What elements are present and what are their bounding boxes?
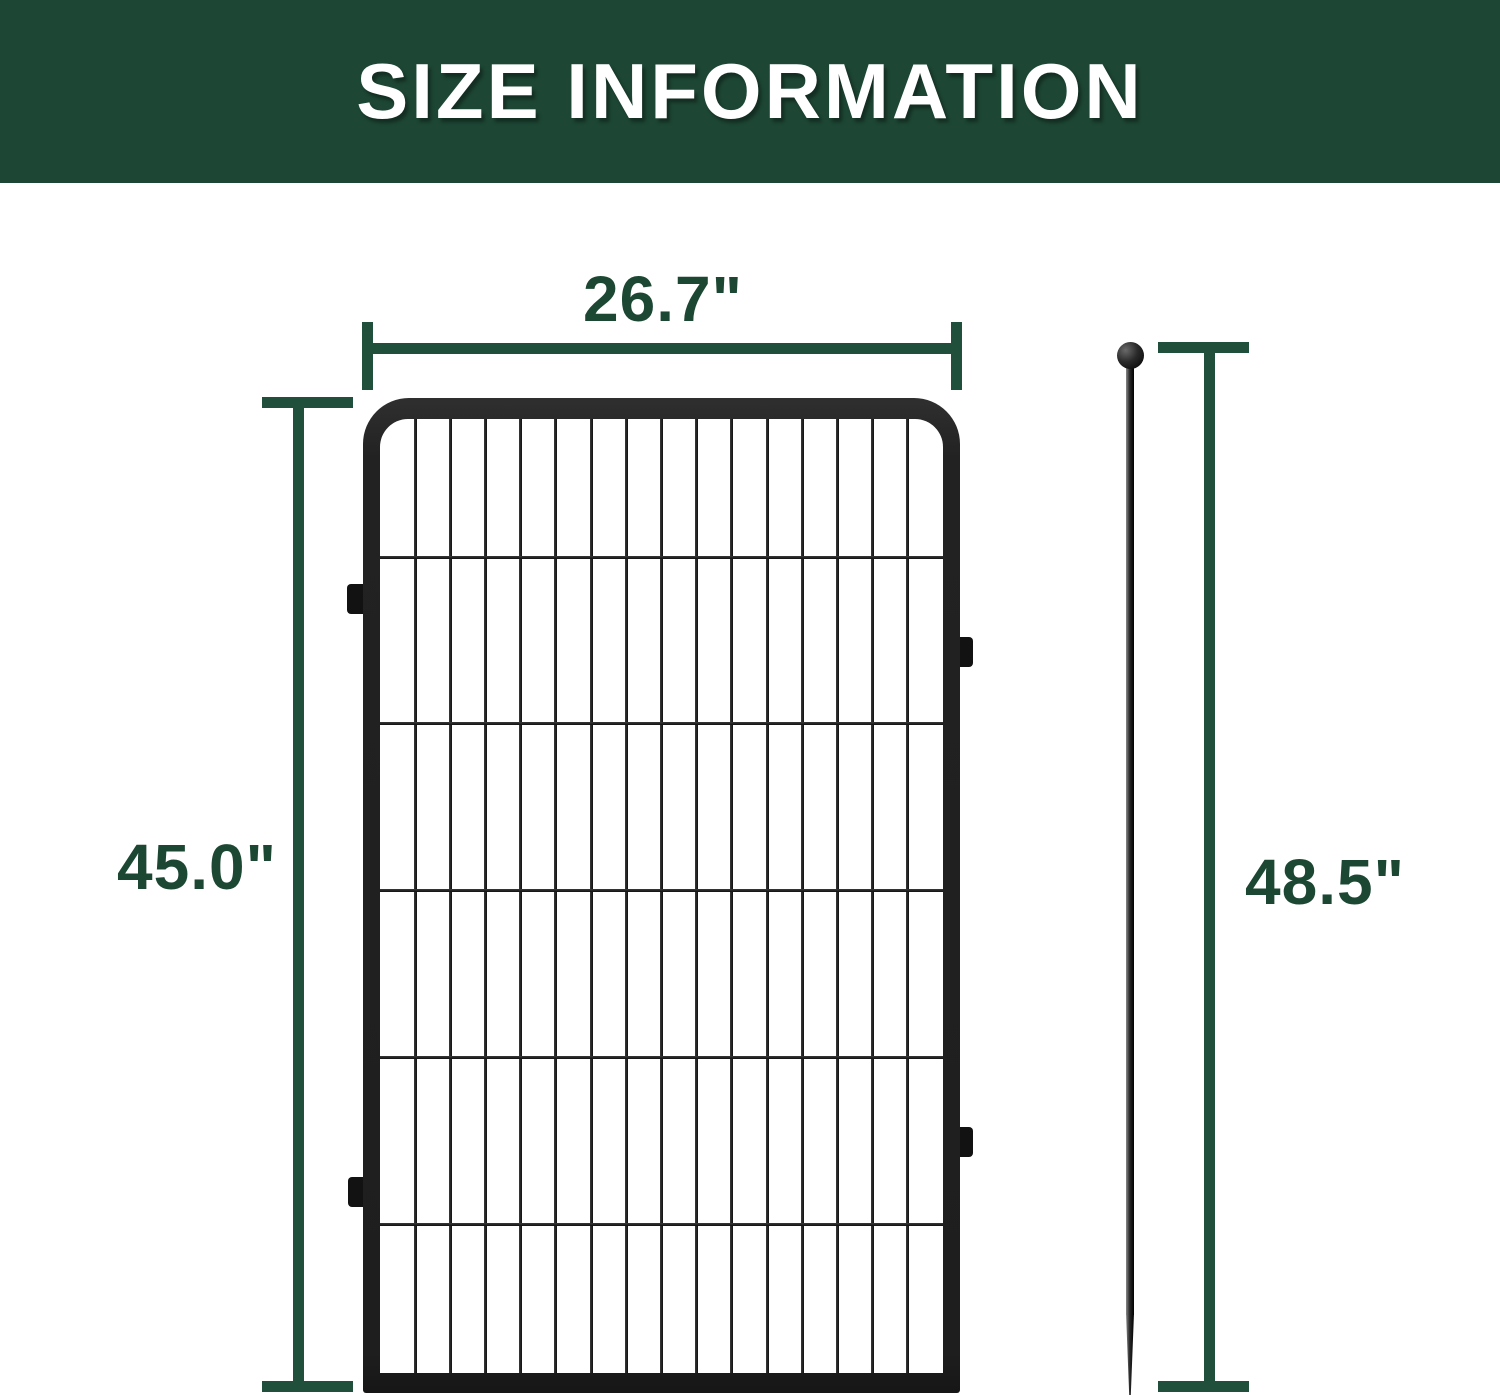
ground-stake-shaft (1126, 364, 1134, 1315)
fence-wire-horizontal (380, 556, 943, 559)
width-dimension-left-tick (362, 322, 373, 390)
panel-height-label: 45.0" (117, 830, 277, 904)
header-banner: SIZE INFORMATION (0, 0, 1500, 183)
width-dimension-right-tick (951, 322, 962, 390)
fence-wire-horizontal (380, 1056, 943, 1059)
fence-wire-vertical (660, 419, 663, 1373)
fence-wire-vertical (414, 419, 417, 1373)
size-information-infographic: SIZE INFORMATION 26.7" 45.0" 48.5" (0, 0, 1500, 1397)
fence-wire-vertical (625, 419, 628, 1373)
fence-wire-vertical (554, 419, 557, 1373)
width-dimension-line (363, 343, 962, 354)
panel-height-dimension-bottom-tick (262, 1381, 353, 1392)
fence-wire-vertical (871, 419, 874, 1373)
panel-width-label: 26.7" (583, 262, 743, 336)
page-title: SIZE INFORMATION (356, 46, 1144, 137)
fence-wire-vertical (449, 419, 452, 1373)
fence-wire-vertical (484, 419, 487, 1373)
fence-wire-vertical (906, 419, 909, 1373)
fence-wire-horizontal (380, 1223, 943, 1226)
fence-grid (380, 419, 943, 1373)
fence-wire-vertical (836, 419, 839, 1373)
ground-stake-ball-top (1117, 342, 1144, 369)
fence-wire-vertical (590, 419, 593, 1373)
panel-height-dimension-top-tick (262, 397, 353, 408)
fence-wire-vertical (519, 419, 522, 1373)
fence-panel (363, 398, 960, 1393)
stake-height-dimension-bottom-tick (1158, 1381, 1249, 1392)
fence-wire-vertical (695, 419, 698, 1373)
stake-height-label: 48.5" (1245, 845, 1405, 919)
stake-height-dimension-line (1204, 342, 1215, 1392)
fence-wire-horizontal (380, 889, 943, 892)
fence-wire-horizontal (380, 722, 943, 725)
fence-wire-vertical (766, 419, 769, 1373)
fence-wire-vertical (730, 419, 733, 1373)
ground-stake-tip (1126, 1313, 1134, 1395)
panel-height-dimension-line (293, 397, 304, 1392)
stake-height-dimension-top-tick (1158, 342, 1249, 353)
fence-wire-vertical (801, 419, 804, 1373)
